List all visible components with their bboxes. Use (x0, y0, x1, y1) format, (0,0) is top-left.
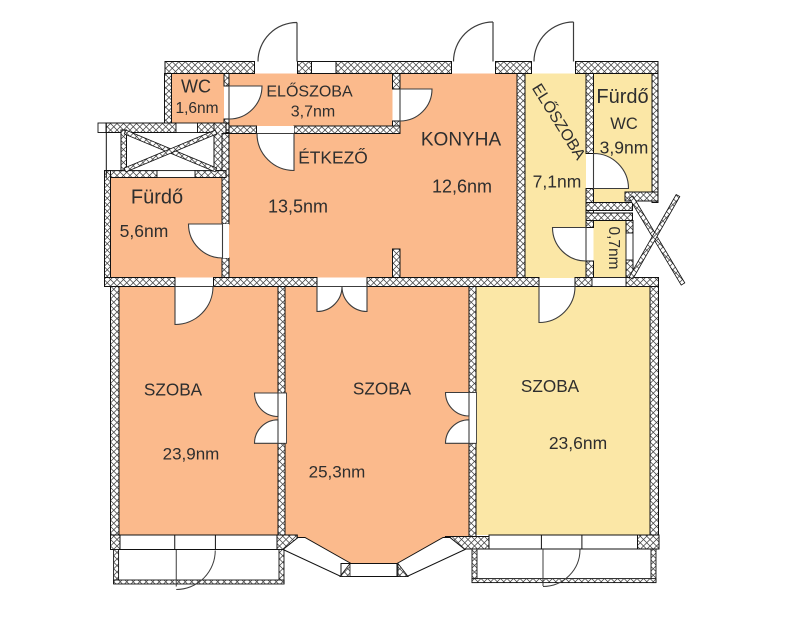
svg-text:13,5nm: 13,5nm (268, 197, 328, 217)
svg-text:SZOBA: SZOBA (144, 380, 203, 400)
svg-text:0,7nm: 0,7nm (605, 226, 622, 269)
svg-text:5,6nm: 5,6nm (120, 221, 169, 241)
svg-text:ÉTKEZŐ: ÉTKEZŐ (298, 148, 368, 168)
svg-text:Fürdő: Fürdő (596, 86, 648, 108)
svg-text:SZOBA: SZOBA (521, 376, 580, 396)
svg-text:1,6nm: 1,6nm (175, 100, 218, 117)
svg-text:WC: WC (610, 115, 638, 133)
svg-text:3,7nm: 3,7nm (291, 104, 335, 121)
svg-text:WC: WC (181, 77, 211, 97)
svg-text:SZOBA: SZOBA (353, 379, 412, 399)
svg-text:25,3nm: 25,3nm (309, 463, 366, 482)
svg-text:ELŐSZOBA: ELŐSZOBA (266, 82, 353, 101)
svg-text:3,9nm: 3,9nm (600, 138, 649, 158)
svg-text:7,1nm: 7,1nm (533, 172, 582, 192)
svg-text:KONYHA: KONYHA (421, 130, 502, 151)
svg-text:Fürdő: Fürdő (131, 187, 183, 209)
svg-text:23,9nm: 23,9nm (163, 445, 220, 464)
svg-text:23,6nm: 23,6nm (549, 433, 607, 453)
svg-text:12,6nm: 12,6nm (432, 177, 492, 197)
